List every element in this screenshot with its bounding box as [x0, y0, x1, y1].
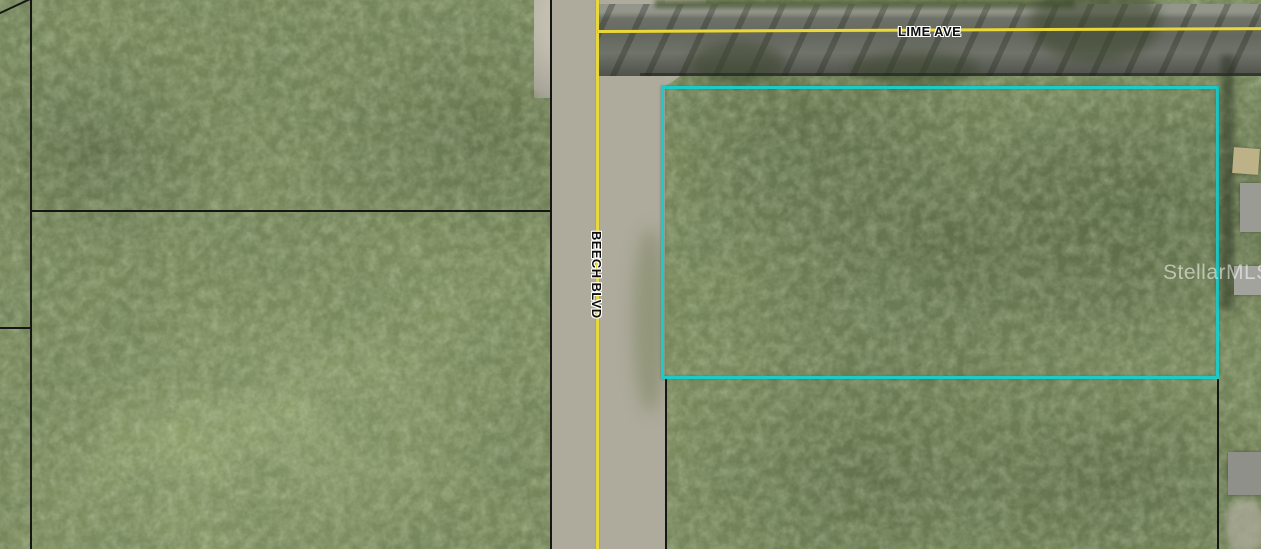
pavement-edge-shadow: [640, 73, 1261, 76]
street-label-lime-ave: LIME AVE: [898, 24, 961, 39]
parcel-line-west-vertical: [30, 0, 32, 549]
parcel-line-west-horizontal: [31, 210, 552, 212]
parcel-line-east: [1217, 377, 1219, 549]
property-boundary-highlight: [661, 86, 1219, 379]
parcel-line-road-west: [550, 0, 552, 549]
stellar-mls-watermark: StellarMLS: [1163, 261, 1261, 285]
clearing: [1226, 500, 1261, 549]
parcel-line-west-stub: [0, 327, 32, 329]
concrete-pad: [1228, 452, 1261, 495]
building: [1240, 183, 1261, 232]
parcel-line-road-east: [665, 379, 667, 549]
tree-overhang: [690, 42, 785, 84]
tree-overhang: [850, 52, 980, 86]
street-label-beech-blvd: BEECH BLVD: [589, 231, 604, 319]
tree-overhang: [655, 0, 1075, 8]
aerial-parcel-map[interactable]: LIME AVE BEECH BLVD StellarMLS: [0, 0, 1261, 549]
building: [1232, 147, 1260, 175]
